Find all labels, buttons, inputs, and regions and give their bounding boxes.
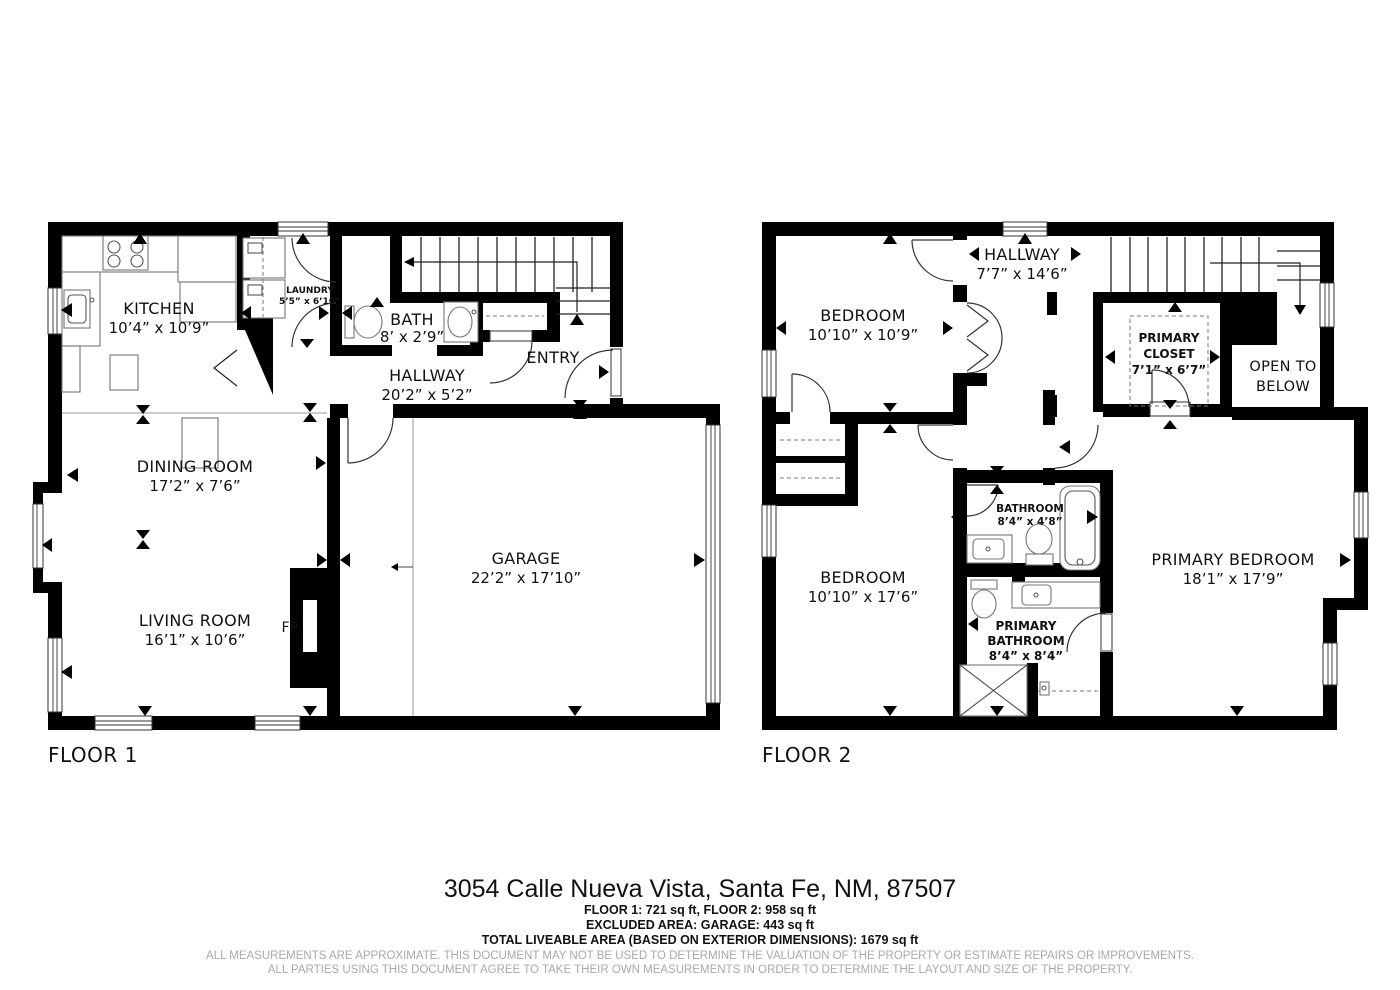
room-label-bedroom2: BEDROOM [820, 568, 906, 587]
window-icon [762, 350, 776, 397]
window-icon [1320, 283, 1334, 327]
door-arc [792, 374, 830, 412]
room-dims-hallway2: 7’7” x 14’6” [976, 265, 1067, 283]
label-open-to-below-1: OPEN TO [1249, 359, 1316, 375]
toilet-icon [1026, 524, 1053, 565]
room-label-laundry: LAUNDRY [286, 286, 334, 296]
floor1-stairs [404, 237, 610, 316]
window-icon [33, 504, 43, 568]
window-icon [255, 716, 300, 730]
angled-wall [245, 330, 273, 395]
bath-sink-icon [444, 302, 478, 342]
room-dims-bath: 8’ x 2’9” [380, 328, 444, 346]
room-label-dining: DINING ROOM [137, 457, 254, 476]
room-dims-primary-bathroom: 8’4” x 8’4” [989, 649, 1063, 663]
garage-door [706, 425, 720, 703]
room-label-hallway2: HALLWAY [984, 245, 1060, 264]
disclaimer-line-1: ALL MEASUREMENTS ARE APPROXIMATE. THIS D… [206, 950, 1194, 962]
excluded-area: EXCLUDED AREA: GARAGE: 443 sq ft [586, 918, 815, 932]
stair-arrow-down [1294, 305, 1306, 315]
room-label-bathroom: BATHROOM [996, 503, 1064, 515]
floor2-plan: HALLWAY 7’7” x 14’6” BEDROOM 10’10” x 10… [762, 222, 1368, 767]
room-dims-bedroom2: 10’10” x 17’6” [808, 588, 918, 606]
double-doors [967, 303, 1002, 373]
room-dims-kitchen: 10’4” x 10’9” [109, 319, 210, 337]
door-arc [292, 238, 336, 282]
room-dims-garage: 22’2” x 17’10” [471, 569, 581, 587]
toilet-icon [971, 580, 997, 618]
floor2-walls [762, 222, 1368, 730]
room-label-primary-closet-2: CLOSET [1143, 347, 1195, 361]
room-dims-primary-bedroom: 18’1” x 17’9” [1183, 570, 1284, 588]
window-icon [1323, 643, 1337, 685]
room-label-kitchen: KITCHEN [123, 299, 194, 318]
footer: 3054 Calle Nueva Vista, Santa Fe, NM, 87… [206, 875, 1194, 976]
chimney-mass [1232, 292, 1277, 345]
window-icon [762, 505, 776, 557]
vanity-sink-icon [967, 535, 1012, 563]
door-arc [292, 303, 336, 347]
property-address: 3054 Calle Nueva Vista, Santa Fe, NM, 87… [444, 875, 956, 903]
room-label-bath: BATH [390, 310, 434, 329]
room-dims-bedroom1: 10’10” x 10’9” [808, 326, 918, 344]
cabinet [62, 346, 80, 392]
tick-arrow [391, 563, 413, 571]
room-label-primary-bedroom: PRIMARY BEDROOM [1151, 550, 1314, 569]
door-arc [348, 418, 393, 463]
floor2-title: FLOOR 2 [762, 743, 852, 767]
room-label-bedroom1: BEDROOM [820, 306, 906, 325]
floor1-title: FLOOR 1 [48, 743, 138, 767]
fireplace-label: FP [281, 620, 298, 636]
room-label-garage: GARAGE [492, 549, 561, 568]
bathtub-icon [1060, 486, 1100, 570]
firebox [303, 600, 317, 652]
door-arc [912, 240, 953, 281]
window-icon [48, 638, 62, 712]
room-label-living: LIVING ROOM [139, 611, 251, 630]
closet-shelving [1130, 316, 1208, 406]
room-label-primary-bathroom-1: PRIMARY [995, 619, 1056, 633]
room-label-hallway: HALLWAY [389, 366, 465, 385]
room-label-primary-bathroom-2: BATHROOM [987, 634, 1064, 648]
room-dims-dining: 17’2” x 7’6” [149, 477, 240, 495]
total-liveable-area: TOTAL LIVEABLE AREA (BASED ON EXTERIOR D… [482, 933, 919, 947]
room-dims-hallway: 20’2” x 5’2” [381, 386, 472, 404]
room-dims-living: 16’1” x 10’6” [145, 631, 246, 649]
label-open-to-below-2: BELOW [1256, 379, 1310, 395]
shower-valve-icon [1040, 682, 1049, 695]
fridge-icon [178, 236, 236, 282]
room-dims-bathroom: 8’4” x 4’8” [997, 516, 1062, 528]
door-arc [918, 425, 953, 460]
floor2-stairs [1111, 237, 1320, 315]
room-dims-laundry: 5’5” x 6’10” [279, 297, 341, 307]
door-arc [967, 485, 998, 516]
door-arc [1067, 613, 1112, 652]
window-icon [95, 716, 152, 730]
floorplan-document: KITCHEN 10’4” x 10’9” LAUNDRY 5’5” x 6’1… [0, 0, 1400, 990]
floorplan-canvas: KITCHEN 10’4” x 10’9” LAUNDRY 5’5” x 6’1… [0, 0, 1400, 990]
vanity-sink-icon [1012, 582, 1100, 608]
floor1-plan: KITCHEN 10’4” x 10’9” LAUNDRY 5’5” x 6’1… [33, 222, 720, 767]
disclaimer-line-2: ALL PARTIES USING THIS DOCUMENT AGREE TO… [268, 964, 1132, 976]
kitchen-island [110, 355, 138, 390]
stair-arrow [404, 257, 414, 267]
room-label-entry: ENTRY [526, 348, 579, 367]
room-dims-primary-closet: 7’1” x 6’7” [1132, 363, 1206, 377]
floor-areas: FLOOR 1: 721 sq ft, FLOOR 2: 958 sq ft [584, 903, 817, 917]
window-icon [1354, 492, 1368, 538]
room-label-primary-closet-1: PRIMARY [1138, 331, 1199, 345]
window-icon [48, 288, 62, 334]
opening-marker [214, 350, 237, 386]
